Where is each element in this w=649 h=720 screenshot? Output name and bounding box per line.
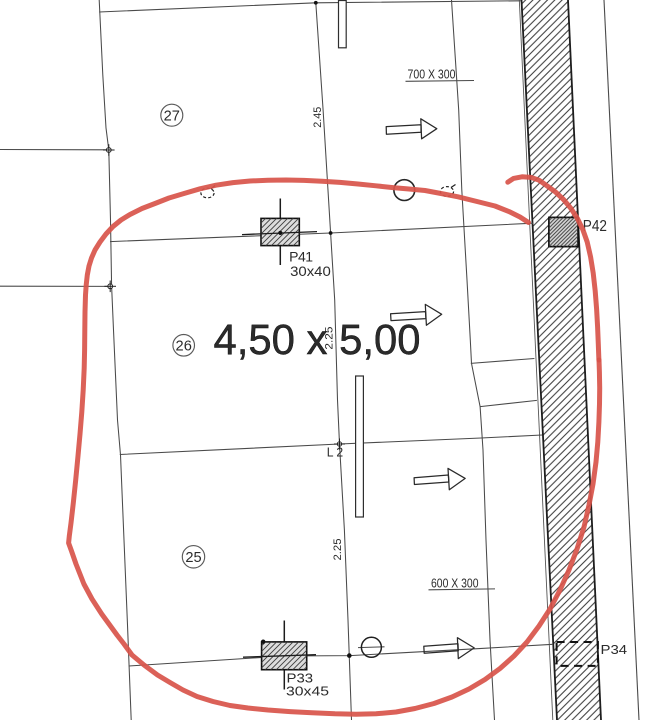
svg-text:30x40: 30x40 — [290, 263, 331, 279]
svg-text:P41: P41 — [289, 248, 313, 264]
svg-text:700 X 300: 700 X 300 — [408, 66, 456, 81]
svg-text:4,50 x 5,00: 4,50 x 5,00 — [214, 317, 421, 364]
svg-text:26: 26 — [176, 339, 192, 355]
svg-text:P34: P34 — [601, 642, 628, 657]
svg-text:600 X 300: 600 X 300 — [431, 576, 479, 591]
svg-text:25: 25 — [185, 550, 201, 566]
svg-text:30x45: 30x45 — [286, 684, 329, 699]
svg-text:2.45: 2.45 — [312, 107, 324, 128]
svg-text:27: 27 — [164, 109, 180, 125]
svg-text:2.25: 2.25 — [332, 539, 344, 561]
svg-text:L 2: L 2 — [327, 446, 344, 460]
